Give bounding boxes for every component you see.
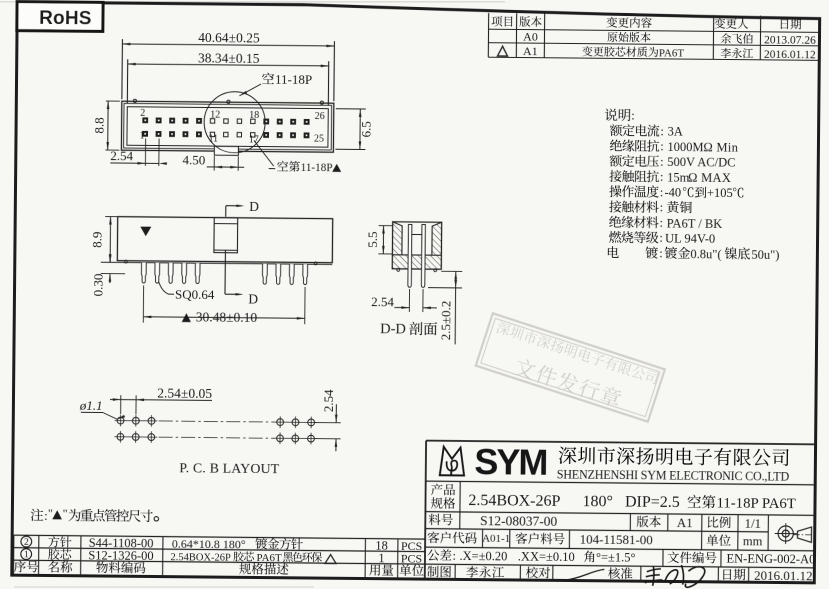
svg-text:": " (63, 506, 68, 520)
svg-text::: : (660, 139, 664, 154)
svg-text:SQ0.64: SQ0.64 (175, 287, 215, 302)
svg-text:S12-08037-00: S12-08037-00 (480, 513, 558, 529)
svg-text::: : (660, 154, 664, 169)
svg-text:D-D: D-D (380, 321, 406, 337)
svg-text:DIP=2.5: DIP=2.5 (625, 494, 680, 512)
svg-text::: : (659, 230, 663, 245)
svg-text::: : (660, 169, 664, 184)
svg-text:2.54: 2.54 (110, 148, 133, 163)
svg-text:SYM: SYM (474, 441, 546, 483)
svg-text:4.50: 4.50 (183, 152, 206, 167)
svg-text:.X=±0.20: .X=±0.20 (459, 549, 507, 563)
svg-text:25: 25 (314, 134, 324, 145)
svg-text:11-18P: 11-18P (275, 72, 312, 87)
svg-text:2.54±0.05: 2.54±0.05 (157, 385, 212, 401)
svg-text:SHENZHENSHI SYM ELECTRONIC CO.: SHENZHENSHI SYM ELECTRONIC CO.,LTD (557, 467, 790, 483)
svg-text:17: 17 (249, 134, 259, 145)
svg-text:PCS: PCS (401, 551, 422, 565)
svg-text:PA6T: PA6T (256, 552, 282, 564)
svg-text:8.8: 8.8 (92, 117, 107, 133)
svg-text:mm: mm (743, 534, 763, 548)
svg-text:Ω Min: Ω Min (703, 140, 738, 154)
svg-text:P. C. B LAYOUT: P. C. B LAYOUT (179, 460, 280, 476)
svg-text:18: 18 (249, 110, 259, 121)
svg-text:1000M: 1000M (667, 140, 703, 154)
svg-text:.XX=±0.10: .XX=±0.10 (518, 550, 575, 565)
svg-text:1: 1 (378, 551, 384, 565)
svg-text:500V AC/DC: 500V AC/DC (667, 155, 735, 170)
svg-text:11-18P: 11-18P (301, 162, 333, 174)
svg-text:11-18P PA6T: 11-18P PA6T (716, 495, 796, 512)
svg-text:26: 26 (315, 111, 325, 122)
svg-text:40.64±0.25: 40.64±0.25 (198, 30, 260, 46)
svg-text:": " (48, 506, 53, 520)
svg-text:PA6T / BK: PA6T / BK (667, 216, 723, 231)
svg-text:6.5: 6.5 (359, 121, 374, 137)
svg-text:5.5: 5.5 (365, 231, 380, 247)
svg-text::: : (660, 184, 664, 199)
svg-text::: : (452, 549, 456, 563)
svg-text::: : (659, 215, 663, 230)
svg-text:1/1: 1/1 (744, 516, 761, 531)
svg-text:S12-1326-00: S12-1326-00 (88, 548, 153, 563)
svg-text:2013.07.26: 2013.07.26 (764, 34, 816, 46)
svg-text:A1: A1 (677, 515, 693, 530)
svg-text:ø1.1: ø1.1 (79, 398, 103, 413)
svg-text::: : (659, 200, 663, 215)
svg-text:EN-ENG-002-A0: EN-ENG-002-A0 (726, 552, 815, 567)
svg-text:D: D (249, 199, 259, 214)
svg-text:PA6T: PA6T (659, 47, 685, 59)
svg-text:A0: A0 (523, 30, 538, 44)
svg-text:11: 11 (208, 134, 218, 145)
svg-text:2: 2 (24, 538, 29, 548)
svg-text:2: 2 (140, 108, 145, 119)
svg-text:0.64*10.8 180°: 0.64*10.8 180° (172, 537, 246, 552)
svg-text:180°: 180° (582, 493, 613, 510)
svg-text:0.30: 0.30 (90, 274, 105, 297)
svg-text::: : (631, 108, 635, 123)
svg-text:0.8u"(: 0.8u"( (690, 247, 721, 261)
svg-text:2.54BOX-26P: 2.54BOX-26P (468, 492, 560, 510)
svg-text:3A: 3A (668, 125, 683, 139)
svg-text:+105: +105 (707, 186, 733, 200)
svg-text::: : (659, 245, 663, 260)
svg-text:50u"): 50u") (751, 248, 779, 262)
svg-text:°=±1.5°: °=±1.5° (596, 550, 636, 564)
svg-text:2016.01.12: 2016.01.12 (764, 49, 816, 61)
svg-text:2016.01.12: 2016.01.12 (754, 568, 813, 584)
svg-text:2.54: 2.54 (321, 389, 336, 412)
svg-text:38.34±0.15: 38.34±0.15 (198, 50, 260, 66)
svg-text:A1: A1 (523, 44, 538, 58)
svg-text:30.48±0.10: 30.48±0.10 (196, 309, 258, 325)
svg-text:15m: 15m (667, 170, 690, 184)
svg-text:UL 94V-0: UL 94V-0 (665, 231, 715, 245)
svg-text:1: 1 (139, 130, 144, 141)
svg-text:104-11581-00: 104-11581-00 (580, 532, 653, 548)
svg-text:-40: -40 (664, 186, 681, 200)
svg-text:8.9: 8.9 (89, 232, 104, 248)
svg-text:D: D (248, 291, 258, 306)
svg-text:Ω MAX: Ω MAX (688, 171, 731, 185)
svg-text:A01-1: A01-1 (482, 533, 510, 545)
svg-text::: : (660, 123, 664, 138)
svg-text:1: 1 (24, 550, 29, 560)
svg-text:12: 12 (210, 109, 220, 120)
svg-text:2.54: 2.54 (371, 294, 394, 309)
svg-text:2.54BOX-26P: 2.54BOX-26P (170, 552, 231, 564)
svg-text:2.5±0.2: 2.5±0.2 (438, 301, 453, 341)
svg-text:RoHS: RoHS (39, 8, 92, 30)
